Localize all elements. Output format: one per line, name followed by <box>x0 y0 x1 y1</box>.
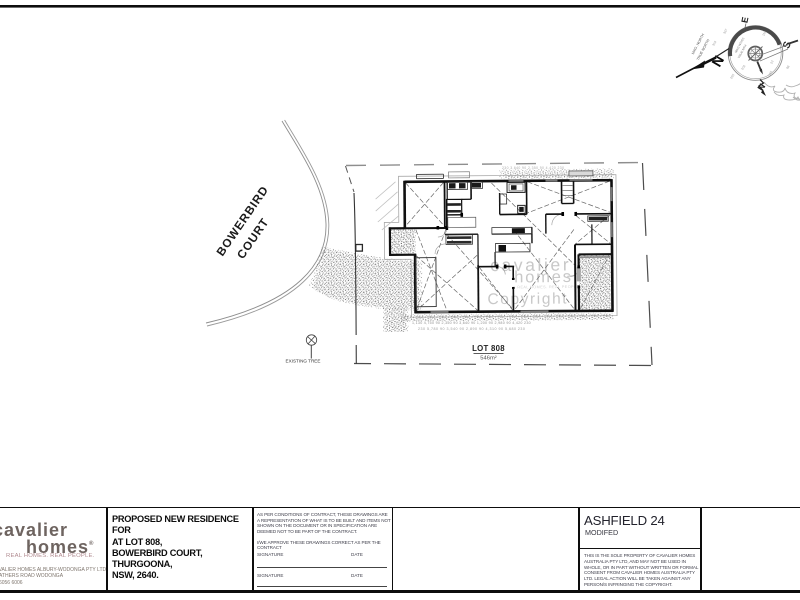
svg-text:REAL HOMES. REAL PEOPLE: REAL HOMES. REAL PEOPLE <box>517 285 579 289</box>
svg-text:230 5,780 90 3,540 90 2,890 90: 230 5,780 90 3,540 90 2,890 90 4,310 90 … <box>418 327 525 331</box>
svg-text:EXISTING TREE: EXISTING TREE <box>286 359 321 364</box>
svg-text:546m²: 546m² <box>480 356 497 362</box>
svg-text:1,130 4,750 90 2,350 90 3,640: 1,130 4,750 90 2,350 90 3,640 90 1,200 9… <box>412 321 531 325</box>
svg-text:255: 255 <box>729 73 735 80</box>
svg-text:E: E <box>739 16 750 24</box>
svg-text:202: 202 <box>740 64 746 71</box>
svg-text:155: 155 <box>767 70 773 77</box>
svg-text:337: 337 <box>722 28 728 35</box>
svg-text:88: 88 <box>785 64 790 69</box>
svg-text:230 3,640 90 2,350 90 4,420 23: 230 3,640 90 2,350 90 4,420 230 <box>502 166 564 170</box>
svg-text:310: 310 <box>711 40 717 47</box>
svg-text:LOT 808: LOT 808 <box>472 344 505 353</box>
svg-text:23: 23 <box>769 59 774 64</box>
